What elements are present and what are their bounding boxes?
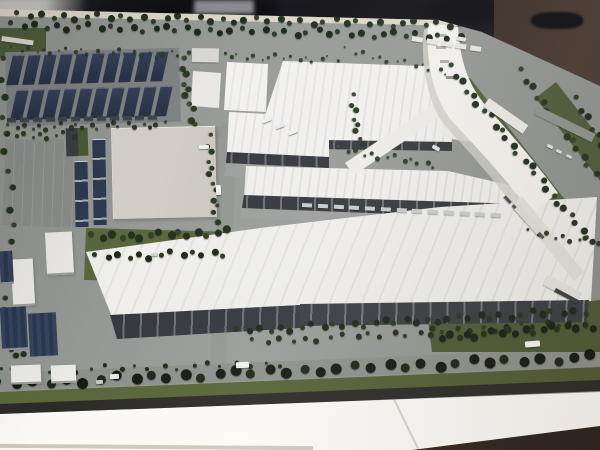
tree-icon: [539, 310, 546, 317]
tree-icon: [435, 32, 440, 37]
tree-icon: [154, 55, 157, 58]
tree-icon: [265, 361, 268, 364]
tree-icon: [22, 122, 27, 127]
tree-icon: [372, 34, 377, 39]
tree-icon: [58, 121, 62, 125]
tree-icon: [132, 364, 135, 367]
tree-icon: [409, 157, 412, 160]
tree-icon: [145, 367, 149, 371]
tree-icon: [583, 311, 588, 316]
tree-icon: [159, 252, 164, 257]
tree-icon: [175, 368, 178, 371]
tree-icon: [256, 324, 263, 331]
tree-icon: [336, 59, 339, 62]
tree-icon: [350, 360, 359, 369]
dash-unit: [333, 205, 343, 210]
tree-icon: [77, 377, 88, 388]
tree-icon: [375, 155, 381, 161]
tree-icon: [127, 16, 133, 22]
tree-icon: [163, 22, 170, 29]
tree-icon: [74, 122, 77, 125]
tree-icon: [106, 123, 110, 127]
tree-icon: [277, 364, 281, 368]
tree-icon: [376, 18, 383, 25]
tree-icon: [148, 232, 154, 238]
tree-icon: [203, 233, 209, 239]
tree-icon: [266, 339, 271, 344]
tree-icon: [10, 45, 12, 47]
dash-unit: [58, 117, 67, 121]
model-vehicle: [216, 185, 222, 195]
tree-icon: [85, 14, 90, 19]
tree-icon: [4, 131, 7, 134]
tree-icon: [392, 329, 398, 335]
tree-icon: [382, 315, 389, 322]
tree-icon: [365, 363, 375, 373]
tree-icon: [363, 154, 366, 157]
tree-icon: [70, 16, 77, 23]
tree-icon: [529, 330, 535, 336]
model-vehicle: [525, 340, 540, 347]
tree-icon: [32, 127, 35, 130]
tree-icon: [198, 14, 204, 20]
dash-unit: [381, 207, 391, 212]
dash-unit: [412, 209, 422, 214]
tree-icon: [54, 22, 60, 28]
tree-icon: [222, 225, 230, 233]
tree-icon: [278, 15, 285, 22]
tree-icon: [183, 232, 190, 239]
tree-icon: [534, 352, 545, 363]
tree-icon: [377, 334, 382, 339]
tree-icon: [120, 366, 125, 371]
dash-unit: [45, 117, 54, 121]
tree-icon: [261, 59, 263, 61]
tree-icon: [108, 23, 113, 28]
tree-icon: [8, 19, 13, 24]
tree-icon: [569, 306, 576, 313]
tree-icon: [339, 331, 344, 336]
tree-icon: [415, 358, 425, 368]
shed-white-roof: [11, 364, 42, 384]
tree-icon: [53, 125, 56, 128]
tree-icon: [44, 136, 49, 141]
tree-icon: [85, 52, 88, 55]
dash-unit: [20, 118, 29, 122]
tree-icon: [300, 324, 305, 329]
tower-window: [436, 46, 446, 49]
tree-icon: [217, 364, 220, 367]
dash-unit: [365, 206, 375, 211]
tree-icon: [272, 52, 276, 56]
dash-unit: [491, 213, 501, 218]
model-vehicle: [96, 380, 103, 384]
tree-icon: [358, 29, 365, 36]
tree-icon: [189, 249, 194, 254]
tree-icon: [281, 367, 292, 378]
landmark-tower-group: [0, 0, 600, 450]
dash-unit: [7, 118, 16, 122]
tree-icon: [127, 121, 131, 125]
tree-icon: [128, 231, 135, 238]
tree-icon: [170, 50, 172, 52]
tree-icon: [32, 136, 35, 139]
dash-unit: [475, 212, 485, 217]
tree-icon: [38, 132, 42, 136]
tree-icon: [330, 363, 341, 374]
tree-icon: [495, 311, 501, 317]
tree-icon: [280, 28, 286, 34]
dash-unit: [148, 115, 157, 119]
tree-icon: [162, 363, 167, 368]
dash-unit: [302, 203, 312, 208]
tree-icon: [455, 325, 460, 330]
tree-icon: [205, 360, 210, 365]
tree-icon: [47, 51, 51, 55]
tree-icon: [505, 327, 511, 333]
tree-icon: [304, 56, 306, 58]
tree-icon: [80, 126, 84, 130]
tree-icon: [90, 367, 93, 370]
shed-white-roof: [11, 258, 35, 306]
tree-icon: [165, 15, 171, 21]
tree-icon: [118, 13, 123, 18]
dash-unit: [318, 204, 328, 209]
tree-icon: [140, 29, 145, 34]
tree-icon: [149, 51, 151, 53]
tree-icon: [171, 27, 176, 32]
tree-icon: [353, 147, 359, 153]
tree-icon: [21, 131, 26, 136]
tree-icon: [235, 53, 237, 55]
tree-icon: [344, 19, 351, 26]
tree-icon: [554, 236, 557, 239]
tree-icon: [106, 254, 112, 260]
tree-icon: [589, 324, 597, 332]
model-vehicle: [110, 374, 119, 379]
tree-icon: [6, 122, 9, 125]
tree-icon: [296, 17, 302, 23]
tree-icon: [14, 9, 19, 14]
tree-icon: [283, 58, 285, 60]
tree-icon: [31, 20, 38, 27]
tree-icon: [95, 49, 99, 53]
tree-icon: [226, 27, 233, 34]
tree-icon: [142, 122, 145, 125]
tree-icon: [58, 49, 60, 51]
dash-unit: [33, 117, 42, 121]
tree-icon: [272, 31, 277, 36]
tree-icon: [164, 120, 167, 123]
tree-icon: [353, 18, 358, 23]
dash-unit: [396, 208, 406, 213]
tree-icon: [36, 51, 38, 53]
gatehouse: [192, 48, 219, 62]
dash-unit: [84, 116, 93, 120]
dash-unit: [71, 117, 80, 121]
tree-icon: [131, 23, 138, 30]
dash-unit: [444, 210, 454, 215]
model-photo: [0, 0, 600, 450]
tree-icon: [42, 47, 45, 50]
scale-model-board: [0, 0, 600, 450]
tree-icon: [246, 369, 255, 378]
solar-canopy-small: [0, 251, 14, 285]
tree-icon: [338, 324, 344, 330]
tree-icon: [74, 50, 78, 54]
tree-icon: [64, 46, 67, 49]
tree-icon: [404, 316, 410, 322]
tree-icon: [229, 55, 233, 59]
tree-icon: [108, 14, 115, 21]
tree-icon: [335, 28, 340, 33]
tree-icon: [245, 57, 248, 60]
dash-unit: [135, 116, 144, 120]
logistics-shed-navy: [74, 161, 88, 227]
tree-icon: [208, 26, 213, 31]
tree-icon: [240, 25, 245, 30]
tree-icon: [114, 251, 121, 258]
tree-icon: [396, 60, 398, 62]
tree-icon: [381, 31, 387, 37]
tree-icon: [224, 51, 227, 54]
model-vehicle: [151, 253, 158, 256]
tree-icon: [249, 29, 255, 35]
tree-icon: [278, 324, 284, 330]
shed-white-roof: [51, 365, 77, 384]
tree-icon: [90, 122, 95, 127]
dash-unit: [428, 210, 438, 215]
tree-icon: [154, 26, 160, 32]
tree-icon: [421, 63, 423, 65]
tree-icon: [183, 17, 188, 22]
tree-icon: [79, 48, 81, 50]
tree-icon: [155, 228, 162, 235]
tree-icon: [372, 57, 374, 59]
tree-icon: [186, 50, 190, 54]
tree-icon: [450, 358, 459, 367]
tree-icon: [426, 159, 432, 165]
tree-icon: [326, 55, 328, 57]
tree-icon: [111, 120, 116, 125]
tree-icon: [519, 321, 523, 325]
tree-icon: [267, 56, 270, 59]
tree-icon: [131, 373, 142, 384]
tree-icon: [400, 363, 409, 372]
dash-unit: [97, 116, 106, 120]
dash-unit: [122, 116, 131, 120]
tree-icon: [596, 240, 600, 246]
tree-icon: [181, 251, 188, 258]
tree-icon: [390, 28, 397, 35]
tree-icon: [302, 335, 307, 340]
tree-icon: [72, 134, 77, 139]
tree-icon: [148, 125, 152, 129]
tree-icon: [55, 134, 58, 137]
model-vehicle: [236, 362, 249, 369]
tree-icon: [215, 229, 222, 236]
tree-icon: [263, 18, 269, 24]
tree-icon: [43, 127, 48, 132]
tree-icon: [567, 238, 573, 244]
tree-icon: [99, 25, 106, 32]
tree-icon: [487, 326, 495, 334]
tree-icon: [288, 54, 291, 57]
tree-icon: [240, 16, 247, 23]
tree-icon: [320, 19, 325, 24]
tree-icon: [517, 312, 522, 317]
tree-icon: [300, 364, 309, 373]
tree-icon: [150, 18, 155, 23]
tree-icon: [352, 319, 359, 326]
tree-icon: [547, 308, 552, 313]
tree-icon: [101, 54, 103, 56]
tree-icon: [128, 255, 133, 260]
tree-icon: [160, 52, 164, 56]
tree-icon: [61, 130, 65, 134]
tree-icon: [111, 51, 114, 54]
tree-icon: [234, 325, 239, 330]
tree-icon: [141, 13, 148, 20]
tree-icon: [429, 325, 435, 331]
tree-icon: [207, 18, 214, 25]
tree-icon: [456, 312, 461, 317]
tree-icon: [424, 22, 429, 27]
tree-icon: [194, 28, 201, 35]
tree-icon: [22, 23, 28, 29]
dash-unit: [459, 211, 469, 216]
tree-icon: [403, 33, 408, 38]
tree-icon: [132, 124, 137, 129]
tree-icon: [330, 321, 335, 326]
tree-icon: [478, 311, 485, 318]
tree-icon: [386, 155, 389, 158]
tower-window: [440, 60, 449, 63]
tree-icon: [435, 361, 446, 372]
tree-icon: [431, 165, 434, 168]
tree-icon: [555, 357, 564, 366]
tree-icon: [509, 314, 516, 321]
tree-icon: [133, 49, 136, 52]
tree-icon: [176, 54, 179, 57]
tree-icon: [360, 324, 365, 329]
tree-icon: [419, 329, 424, 334]
tree-icon: [310, 60, 313, 63]
tree-icon: [231, 19, 237, 25]
tree-icon: [122, 52, 124, 54]
tree-icon: [385, 358, 396, 369]
tree-icon: [0, 366, 3, 369]
tree-icon: [578, 238, 581, 241]
tree-icon: [543, 230, 549, 236]
tree-icon: [354, 52, 358, 56]
tree-icon: [526, 227, 529, 230]
tree-icon: [62, 26, 69, 33]
tree-icon: [321, 323, 328, 330]
shed-white-roof: [45, 231, 74, 275]
tree-icon: [487, 315, 492, 320]
model-vehicle: [199, 145, 209, 149]
tree-icon: [69, 124, 74, 129]
tree-icon: [391, 320, 396, 325]
logistics-shed-navy: [92, 139, 106, 225]
tree-icon: [320, 57, 324, 61]
tree-icon: [38, 10, 45, 17]
tree-icon: [584, 348, 595, 359]
tree-icon: [336, 144, 339, 147]
tree-icon: [355, 334, 361, 340]
wall-pillar: [194, 0, 254, 14]
tree-icon: [413, 319, 420, 326]
tree-icon: [287, 20, 292, 25]
tree-icon: [20, 49, 23, 52]
tree-icon: [403, 158, 409, 164]
tree-icon: [263, 26, 270, 33]
dash-unit: [110, 116, 119, 120]
solar-canopy-small: [0, 306, 28, 350]
tree-icon: [153, 122, 158, 127]
tree-icon: [15, 134, 19, 138]
tree-icon: [45, 25, 50, 30]
tree-icon: [52, 15, 57, 20]
dash-unit: [349, 205, 359, 210]
tree-icon: [146, 370, 155, 379]
tree-icon: [561, 310, 567, 316]
tree-icon: [92, 251, 97, 256]
tree-icon: [102, 363, 106, 367]
tree-icon: [212, 248, 219, 255]
tree-icon: [251, 54, 255, 58]
tree-icon: [294, 31, 301, 38]
solar-canopy-small: [28, 312, 58, 358]
tree-icon: [138, 53, 142, 57]
tree-icon: [192, 364, 196, 368]
tree-icon: [326, 30, 333, 37]
dark-reflective-object: [531, 12, 583, 29]
tree-icon: [512, 330, 520, 338]
tree-icon: [26, 45, 30, 49]
